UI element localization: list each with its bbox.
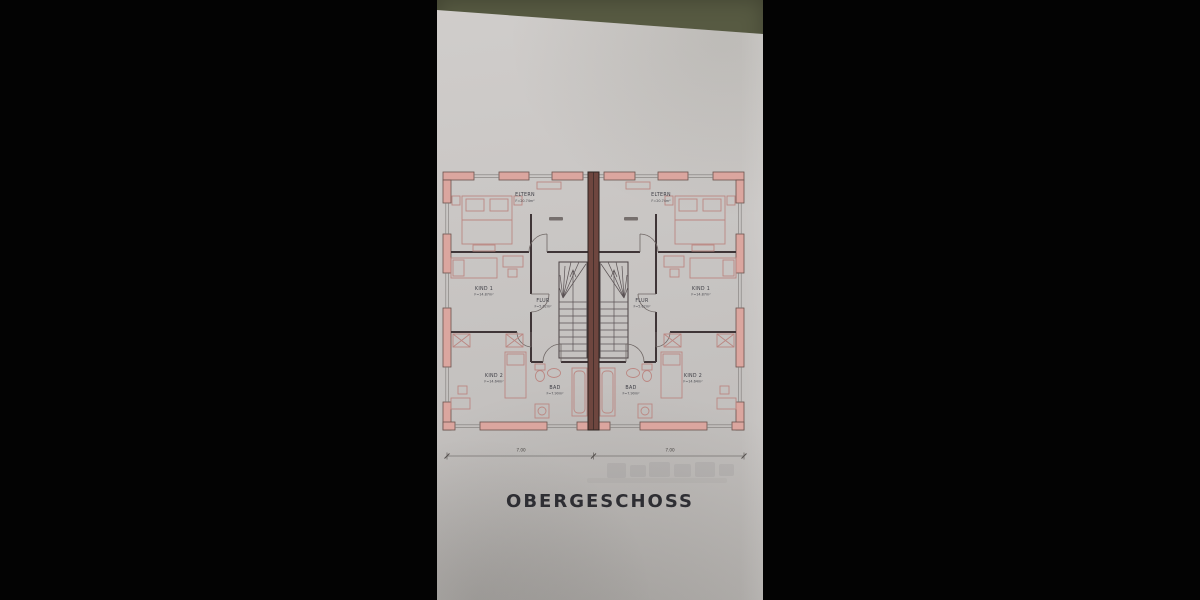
ghost-bleedthrough — [587, 462, 734, 483]
room-area-eltern-left: F=20.74m² — [515, 199, 535, 203]
room-label-kind1-right: KIND 1 — [692, 286, 710, 292]
room-area-kind1-right: F=14.87m² — [691, 293, 711, 297]
room-label-kind1-left: KIND 1 — [475, 286, 493, 292]
room-area-kind2-right: F=14.64m² — [683, 380, 703, 384]
room-label-kind2-right: KIND 2 — [684, 373, 702, 379]
dimension-line — [445, 453, 747, 460]
dimension-label-left: 7.00 — [516, 448, 526, 453]
room-label-flur-right: FLUR — [635, 298, 649, 304]
floorplan-photo: 7.00 7.00 ELTERN F=20.74m² KIND 1 F=14.8… — [437, 0, 763, 600]
room-area-kind2-left: F=14.64m² — [484, 380, 504, 384]
dimension-label-right: 7.00 — [665, 448, 675, 453]
room-label-eltern-left: ELTERN — [515, 192, 535, 198]
room-label-eltern-right: ELTERN — [651, 192, 671, 198]
room-label-bad-right: BAD — [625, 385, 636, 391]
room-label-bad-left: BAD — [549, 385, 560, 391]
letterbox-left — [0, 0, 437, 600]
room-area-flur-left: F=5.62m² — [534, 305, 552, 309]
plan-title: OBERGESCHOSS — [437, 491, 763, 512]
right-unit-geometry — [599, 172, 744, 430]
room-area-flur-right: F=5.62m² — [633, 305, 651, 309]
room-area-bad-right: F=7.90m² — [622, 392, 640, 396]
room-area-eltern-right: F=20.74m² — [651, 199, 671, 203]
room-area-kind1-left: F=14.87m² — [474, 293, 494, 297]
room-label-flur-left: FLUR — [536, 298, 550, 304]
letterbox-right — [763, 0, 1200, 600]
left-unit-geometry — [443, 172, 588, 430]
room-label-kind2-left: KIND 2 — [485, 373, 503, 379]
screenshot: 7.00 7.00 ELTERN F=20.74m² KIND 1 F=14.8… — [0, 0, 1200, 600]
room-area-bad-left: F=7.90m² — [546, 392, 564, 396]
party-wall — [588, 172, 599, 430]
